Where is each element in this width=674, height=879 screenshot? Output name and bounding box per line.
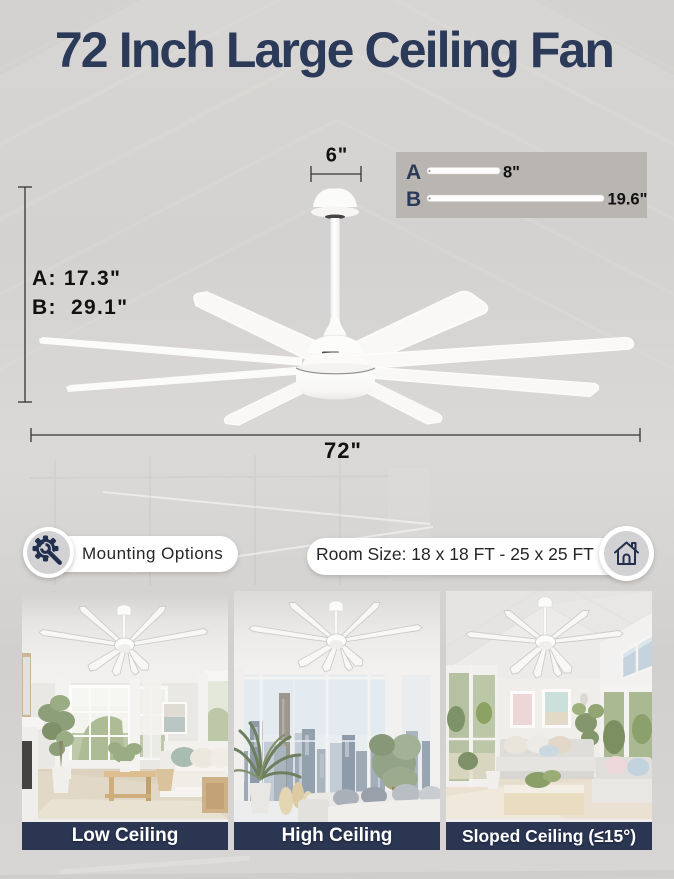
svg-text:B: 29.1": B: 29.1" [32, 296, 128, 319]
svg-text:8": 8" [503, 164, 520, 182]
svg-text:19.6": 19.6" [608, 191, 648, 209]
svg-text:72": 72" [324, 438, 362, 463]
svg-text:A: 17.3": A: 17.3" [32, 267, 121, 290]
svg-text:B: B [406, 188, 421, 211]
svg-text:A: A [406, 161, 421, 184]
svg-text:6": 6" [326, 145, 349, 167]
